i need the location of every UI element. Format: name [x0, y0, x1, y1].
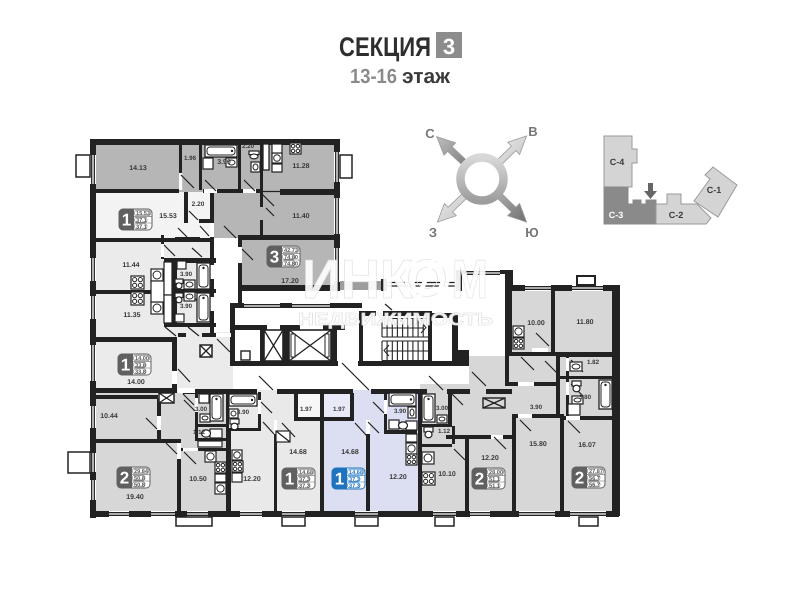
svg-text:1.12: 1.12: [438, 428, 451, 435]
svg-text:10.10: 10.10: [438, 471, 456, 478]
svg-text:1.96: 1.96: [184, 155, 197, 162]
svg-text:10.44: 10.44: [100, 413, 118, 420]
svg-text:10.00: 10.00: [527, 320, 545, 327]
svg-text:3.90: 3.90: [180, 271, 193, 278]
svg-text:З: З: [429, 225, 437, 240]
svg-text:М: М: [452, 248, 488, 310]
svg-text:11.80: 11.80: [576, 319, 593, 326]
svg-text:1: 1: [122, 211, 131, 230]
svg-text:Ю: Ю: [525, 225, 538, 240]
svg-text:1: 1: [285, 470, 294, 489]
svg-text:1: 1: [121, 356, 130, 375]
svg-text:17.20: 17.20: [281, 278, 299, 285]
svg-text:12.20: 12.20: [481, 455, 499, 462]
svg-text:37.3: 37.3: [349, 484, 360, 490]
svg-text:С-3: С-3: [609, 210, 624, 220]
svg-text:56.7: 56.7: [589, 483, 600, 489]
svg-text:1.12: 1.12: [193, 429, 206, 436]
svg-text:13-16: 13-16: [350, 65, 397, 88]
svg-text:3.90: 3.90: [217, 159, 231, 166]
svg-text:2: 2: [575, 469, 584, 488]
svg-text:2: 2: [475, 470, 484, 489]
svg-text:11.44: 11.44: [122, 262, 139, 269]
svg-text:3.90: 3.90: [180, 303, 193, 310]
svg-text:3: 3: [443, 34, 455, 59]
svg-text:3.90: 3.90: [237, 409, 250, 416]
svg-text:3.00: 3.00: [195, 406, 208, 413]
svg-text:ИНК: ИНК: [302, 248, 413, 310]
svg-text:1: 1: [335, 470, 344, 489]
svg-text:3: 3: [270, 248, 279, 267]
svg-text:14.00: 14.00: [127, 379, 145, 386]
svg-text:51.1: 51.1: [489, 484, 500, 490]
svg-text:3.90: 3.90: [394, 408, 407, 415]
svg-text:74.80: 74.80: [284, 262, 298, 268]
svg-text:3.80: 3.80: [579, 394, 592, 401]
svg-text:СЕКЦИЯ: СЕКЦИЯ: [339, 32, 431, 62]
svg-text:19.40: 19.40: [126, 494, 144, 501]
svg-text:В: В: [528, 124, 537, 139]
svg-text:37.1: 37.1: [136, 225, 147, 231]
svg-text:2: 2: [120, 469, 129, 488]
svg-text:11.28: 11.28: [292, 163, 309, 170]
svg-text:15.80: 15.80: [529, 441, 547, 448]
svg-text:16.07: 16.07: [578, 442, 596, 449]
svg-text:10.50: 10.50: [189, 476, 207, 483]
svg-text:С-4: С-4: [610, 157, 625, 167]
svg-text:14.13: 14.13: [129, 165, 147, 172]
svg-text:С: С: [425, 126, 435, 141]
svg-text:14.68: 14.68: [289, 449, 307, 456]
svg-text:НЕДВИЖИМОСТЬ: НЕДВИЖИМОСТЬ: [298, 309, 493, 329]
svg-text:1.82: 1.82: [587, 359, 600, 366]
svg-text:3.90: 3.90: [530, 404, 543, 411]
svg-text:33.8: 33.8: [135, 370, 146, 376]
svg-text:2.20: 2.20: [242, 143, 255, 150]
svg-text:50.8: 50.8: [134, 483, 145, 489]
svg-text:этаж: этаж: [402, 65, 450, 88]
svg-text:11.40: 11.40: [292, 213, 309, 220]
svg-text:1.97: 1.97: [333, 406, 346, 413]
svg-text:12.20: 12.20: [243, 476, 261, 483]
svg-text:37.3: 37.3: [299, 484, 310, 490]
svg-text:С-1: С-1: [707, 185, 722, 195]
svg-text:3.00: 3.00: [436, 405, 449, 412]
svg-text:12.20: 12.20: [389, 474, 407, 481]
svg-text:15.53: 15.53: [159, 213, 177, 220]
svg-text:2.20: 2.20: [192, 201, 205, 208]
svg-text:14.68: 14.68: [341, 449, 359, 456]
svg-text:1.97: 1.97: [300, 406, 313, 413]
svg-text:С-2: С-2: [669, 210, 684, 220]
svg-text:11.35: 11.35: [123, 312, 140, 319]
